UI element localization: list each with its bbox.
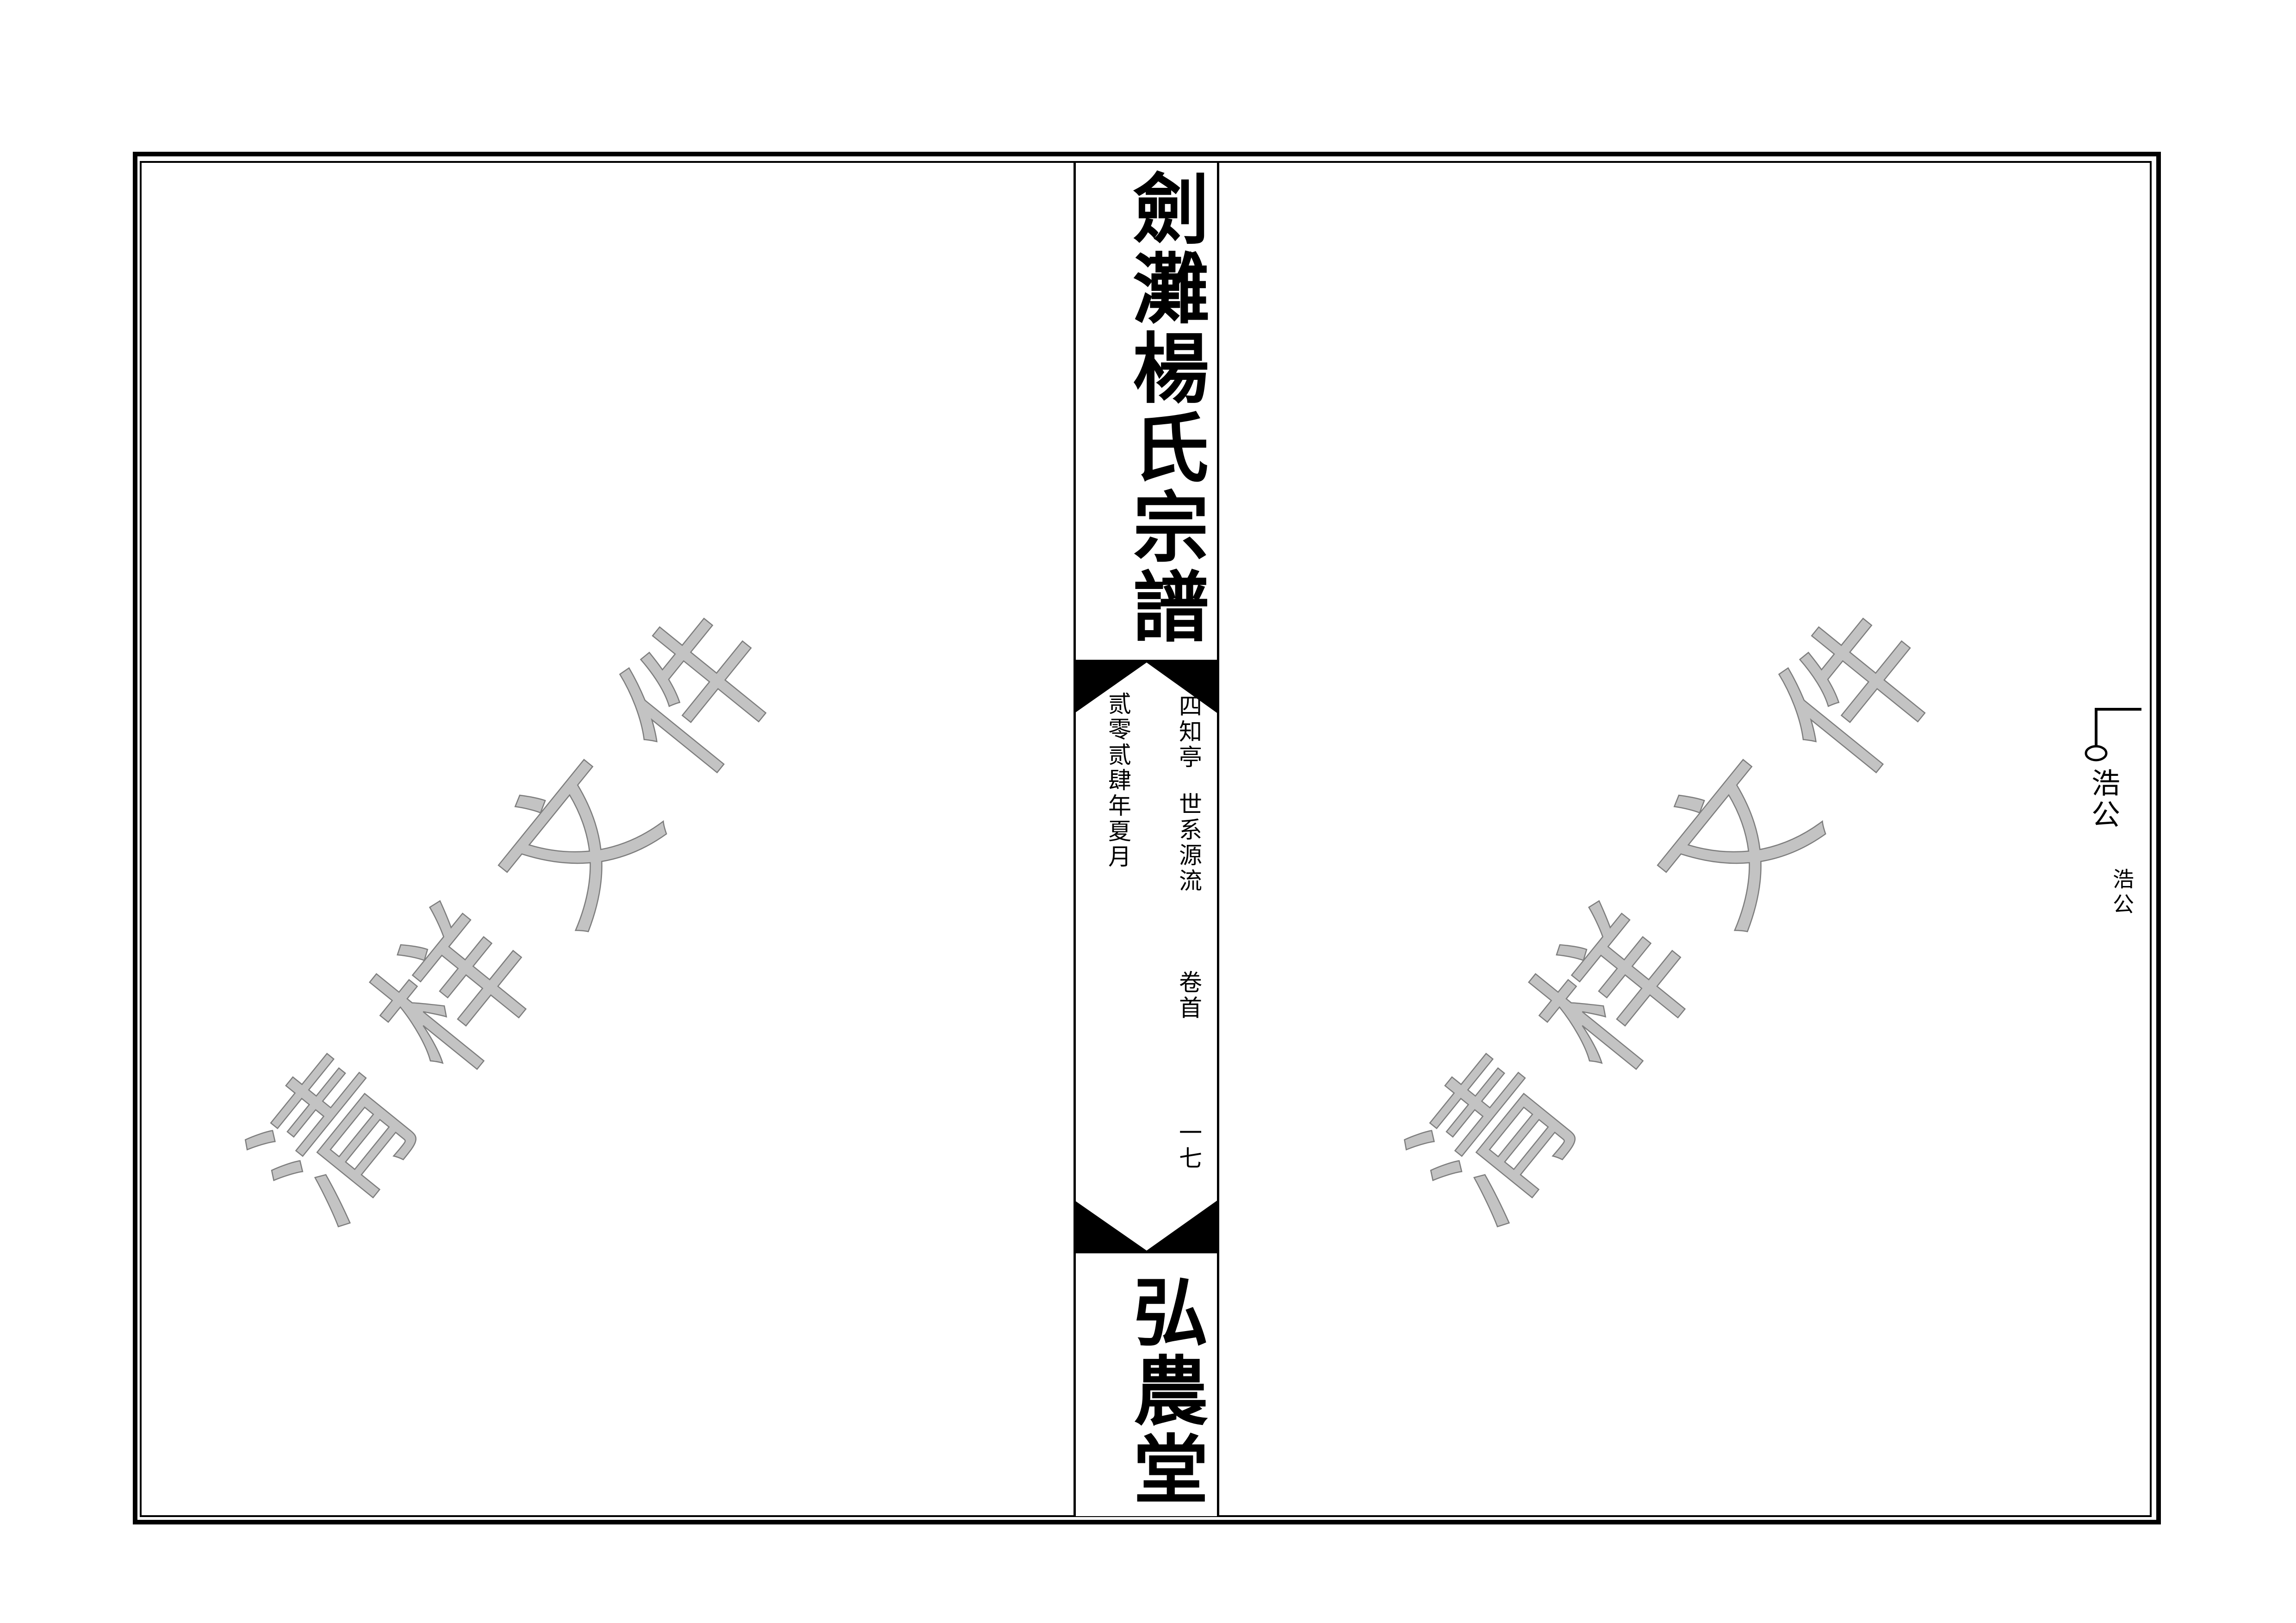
spine-date-column: 贰零贰肆年夏月 [1101,692,1135,870]
spine-section-label: 世系源流 [1172,792,1205,894]
spine-volume-number: 一七 [1172,1121,1205,1171]
spine-pavilion-label: 四知亭 [1172,694,1205,770]
spine-ribbon-bottom [1074,1200,1218,1253]
spine-volume-label: 卷首 [1172,970,1205,1021]
spine-hall-name: 弘農堂 [1109,1273,1217,1509]
tree-node-note: 浩公 [2106,868,2137,918]
genealogy-cover-sheet: 清样文件 清样文件 劍灘楊氏宗譜 贰零贰肆年夏月 四知亭 世系源流 卷首 一七 … [0,0,2296,1623]
tree-node-label: 浩公 [2082,768,2123,831]
tree-connector-line [2096,709,2141,746]
spine-title: 劍灘楊氏宗譜 [1108,169,1219,647]
tree-node-circle-icon [2086,746,2106,760]
